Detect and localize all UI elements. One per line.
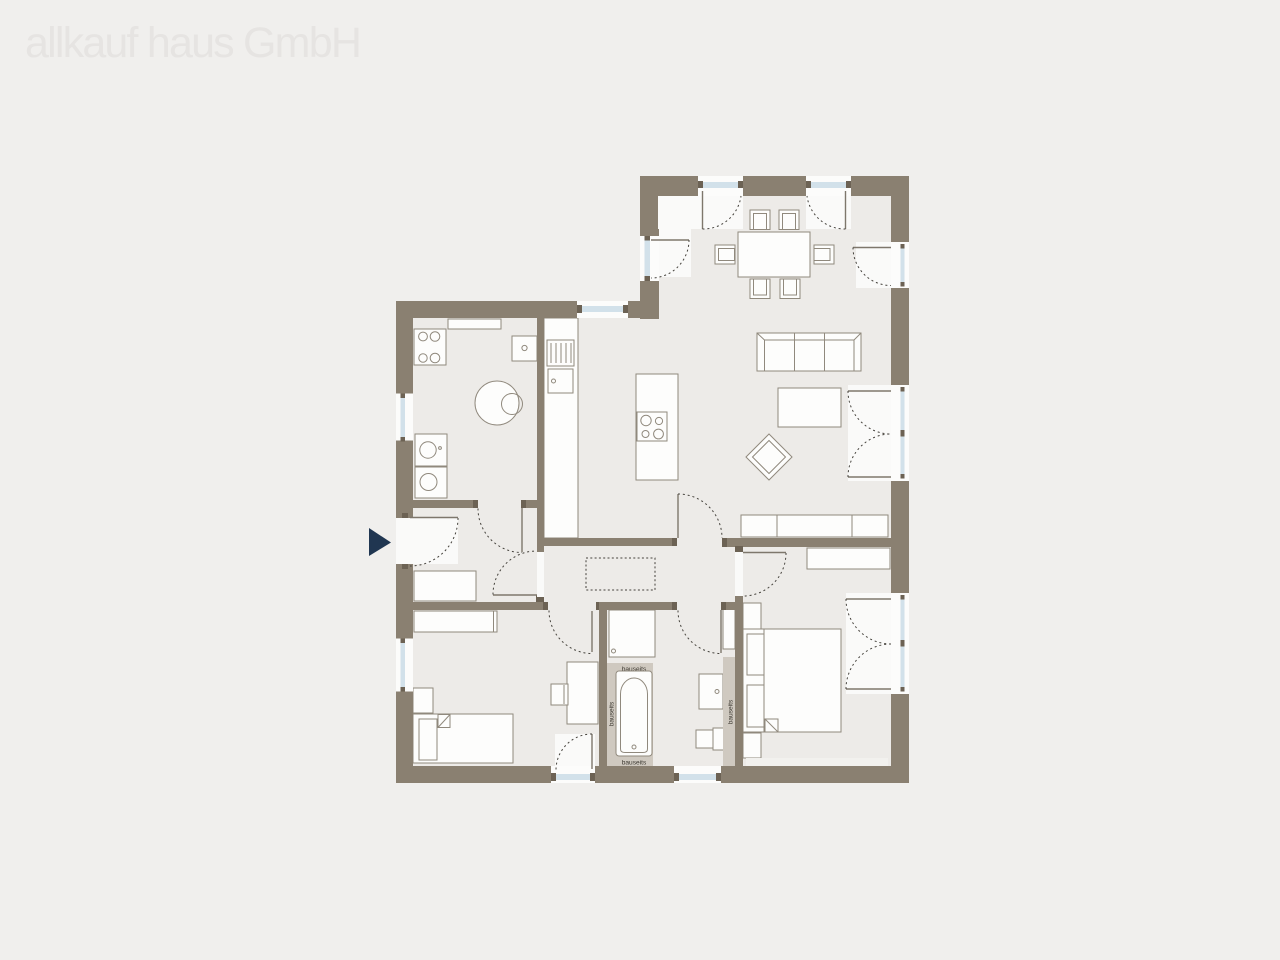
svg-text:bauseits: bauseits (728, 699, 735, 724)
svg-text:bauseits: bauseits (622, 760, 647, 767)
svg-text:bauseits: bauseits (609, 701, 616, 726)
svg-text:allkauf haus GmbH: allkauf haus GmbH (25, 19, 360, 67)
